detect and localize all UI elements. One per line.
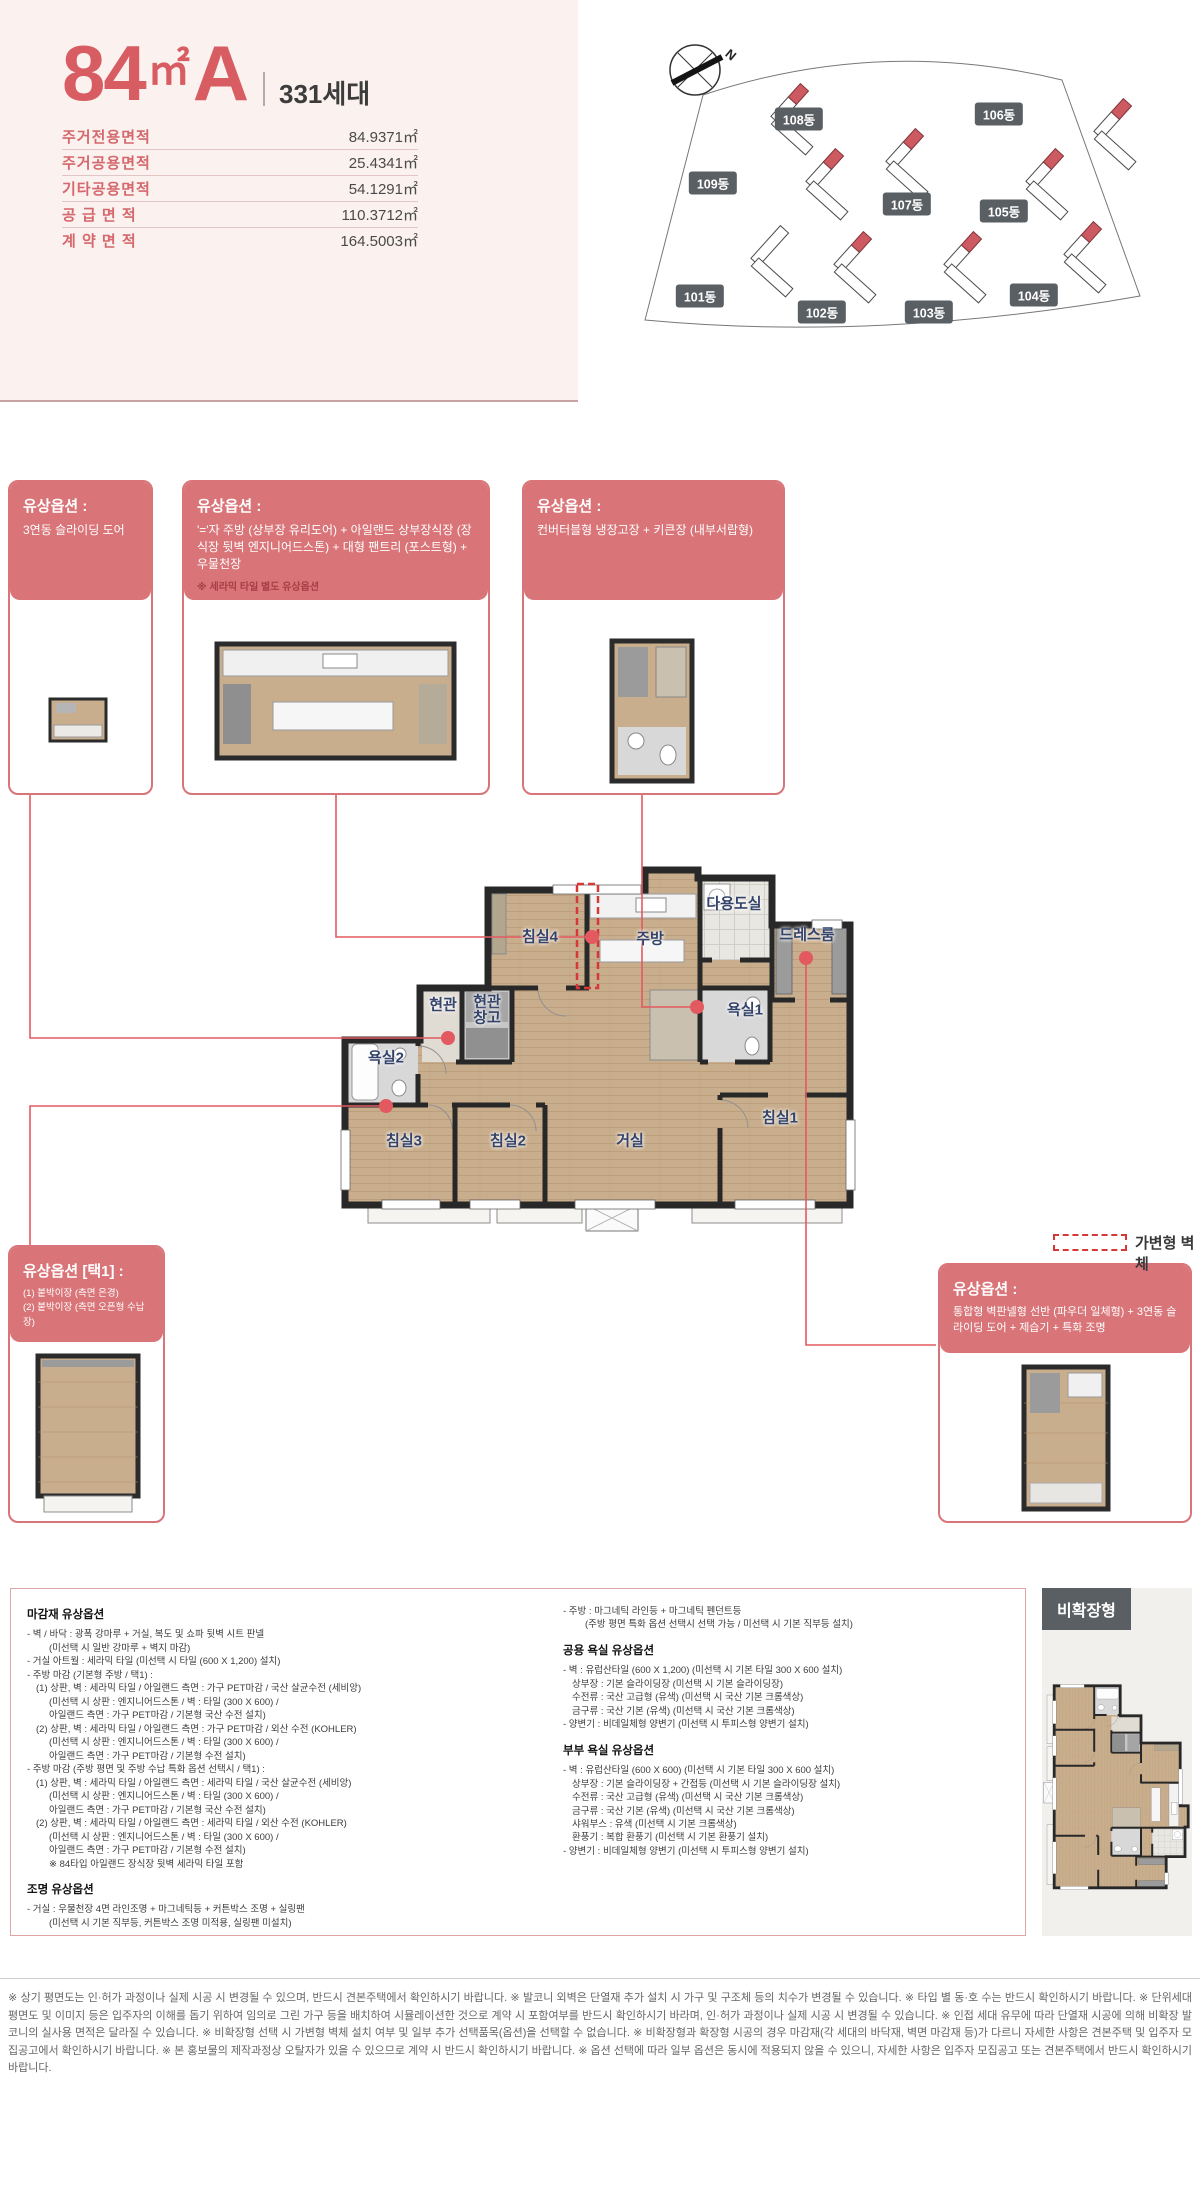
area-row: 공 급 면 적 110.3712㎡ xyxy=(62,201,418,227)
option-connectors xyxy=(30,795,936,1345)
option-title: 유상옵션 : xyxy=(197,495,475,516)
spec-line: - 거실 아트월 : 세라믹 타일 (미선택 시 타일 (600 X 1,200… xyxy=(27,1655,547,1668)
area-table: 주거전용면적 84.9371㎡ 주거공용면적 25.4341㎡ 기타공용면적 5… xyxy=(62,124,418,253)
room-label-bedroom1: 침실1 xyxy=(762,1107,798,1128)
spec-line: (2) 상판, 벽 : 세라믹 타일 / 아일랜드 측면 : 가구 PET마감 … xyxy=(27,1723,547,1736)
option-box-fridge: 유상옵션 : 컨버터블형 냉장고장 + 키큰장 (내부서랍형) xyxy=(522,480,785,795)
area-row: 계 약 면 적 164.5003㎡ xyxy=(62,227,418,253)
option-box-header: 유상옵션 [택1] : (1) 붙박이장 (측면 은경) (2) 붙박이장 (측… xyxy=(10,1247,163,1342)
spec-line: 아일랜드 측면 : 가구 PET마감 / 기본형 국산 수전 설치) xyxy=(27,1804,547,1817)
title-divider xyxy=(263,72,265,106)
hero-panel: 84㎡A 331세대 주거전용면적 84.9371㎡ 주거공용면적 25.434… xyxy=(0,0,578,402)
floor-plan-graphic xyxy=(341,870,855,1231)
spec-column-right: - 주방 : 마그네틱 라인등 + 마그네틱 펜던트등(주방 평면 특화 옵션 … xyxy=(563,1605,1018,1858)
option-box-header: 유상옵션 : 통합형 벽판넬형 선반 (파우더 일체형) + 3연동 슬라이딩 … xyxy=(940,1265,1190,1353)
option-thumbnail xyxy=(608,637,696,785)
building-label-107: 107동 xyxy=(883,193,931,216)
spec-line: 아일랜드 측면 : 가구 PET마감 / 기본형 수전 설치) xyxy=(27,1844,547,1857)
spec-line: 금구류 : 국산 기본 (유색) (미선택 시 국산 기본 크롬색상) xyxy=(563,1705,1018,1718)
spec-line: 부부 욕실 유상옵션 xyxy=(563,1743,1018,1759)
building-label-102: 102동 xyxy=(798,301,846,324)
spec-line: 환풍기 : 복합 환풍기 (미선택 시 기본 환풍기 설치) xyxy=(563,1831,1018,1844)
spec-line: 상부장 : 기본 슬라이딩장 (미선택 시 기본 슬라이딩장) xyxy=(563,1678,1018,1691)
option-body: 3연동 슬라이딩 도어 xyxy=(23,522,138,539)
spec-line: - 주방 마감 (주방 평면 및 주방 수납 특화 옵션 선택시 / 택1) : xyxy=(27,1763,547,1776)
spec-line: (미선택 시 상판 : 엔지니어드스톤 / 벽 : 타일 (300 X 600)… xyxy=(27,1790,547,1803)
building-label-106: 106동 xyxy=(975,103,1023,126)
spec-line: (1) 상판, 벽 : 세라믹 타일 / 아일랜드 측면 : 세라믹 타일 / … xyxy=(27,1777,547,1790)
spec-line: 샤워부스 : 유색 (미선택 시 기본 크롬색상) xyxy=(563,1818,1018,1831)
spec-line: 마감재 유상옵션 xyxy=(27,1607,547,1623)
area-row: 기타공용면적 54.1291㎡ xyxy=(62,175,418,201)
building-label-105: 105동 xyxy=(980,200,1028,223)
option-box-sliding-door: 유상옵션 : 3연동 슬라이딩 도어 xyxy=(8,480,153,795)
option-box-powder-shelf: 유상옵션 : 통합형 벽판넬형 선반 (파우더 일체형) + 3연동 슬라이딩 … xyxy=(938,1263,1192,1523)
spec-column-left: 마감재 유상옵션- 벽 / 바닥 : 광폭 강마루 + 거실, 복도 및 쇼파 … xyxy=(27,1605,547,1930)
spec-line: (1) 상판, 벽 : 세라믹 타일 / 아일랜드 측면 : 가구 PET마감 … xyxy=(27,1682,547,1695)
area-value: 164.5003㎡ xyxy=(340,230,418,251)
spec-line: 상부장 : 기본 슬라이딩장 + 간접등 (미선택 시 기본 슬라이딩장 설치) xyxy=(563,1778,1018,1791)
spec-line: 아일랜드 측면 : 가구 PET마감 / 기본형 국산 수전 설치) xyxy=(27,1709,547,1722)
spec-line: ※ 84타입 아일랜드 장식장 뒷벽 세라믹 타일 포함 xyxy=(27,1858,547,1871)
option-dots xyxy=(379,930,813,1113)
svg-text:N: N xyxy=(723,46,740,64)
building-label-108: 108동 xyxy=(775,108,823,131)
room-label-bedroom2: 침실2 xyxy=(490,1130,526,1151)
area-value: 110.3712㎡ xyxy=(342,204,418,225)
spec-line: 조명 유상옵션 xyxy=(27,1882,547,1898)
option-note: ※ 세라믹 타일 별도 유상옵션 xyxy=(197,578,475,593)
spec-line: - 벽 / 바닥 : 광폭 강마루 + 거실, 복도 및 쇼파 뒷벽 시트 판넬 xyxy=(27,1628,547,1641)
option-box-closet: 유상옵션 [택1] : (1) 붙박이장 (측면 은경) (2) 붙박이장 (측… xyxy=(8,1245,165,1523)
spec-line xyxy=(27,1871,547,1880)
room-label-bedroom4: 침실4 xyxy=(522,926,558,947)
option-body: '='자 주방 (상부장 유리도어) + 아일랜드 상부장식장 (장식장 뒷벽 … xyxy=(197,522,475,573)
spec-line: (미선택 시 상판 : 엔지니어드스톤 / 벽 : 타일 (300 X 600)… xyxy=(27,1736,547,1749)
spec-line: - 양변기 : 비데일체형 양변기 (미선택 시 투피스형 양변기 설치) xyxy=(563,1845,1018,1858)
option-thumbnail xyxy=(1020,1363,1112,1513)
room-label-dressroom: 드레스룸 xyxy=(779,924,834,945)
spec-line: (미선택 시 상판 : 엔지니어드스톤 / 벽 : 타일 (300 X 600)… xyxy=(27,1696,547,1709)
area-value: 25.4341㎡ xyxy=(349,152,418,173)
building-label-103: 103동 xyxy=(905,301,953,324)
option-title: 유상옵션 : xyxy=(23,495,138,516)
area-value: 54.1291㎡ xyxy=(349,178,418,199)
spec-line: 수전류 : 국산 고급형 (유색) (미선택 시 국산 기본 크롬색상) xyxy=(563,1791,1018,1804)
spec-line: 금구류 : 국산 기본 (유색) (미선택 시 국산 기본 크롬색상) xyxy=(563,1805,1018,1818)
spec-line: (미선택 시 기본 직부등, 커튼박스 조명 미적용, 실링팬 미설치) xyxy=(27,1917,547,1930)
room-label-utility: 다용도실 xyxy=(706,893,761,914)
spec-line: (미선택 시 일반 강마루 + 벽지 마감) xyxy=(27,1642,547,1655)
option-box-kitchen: 유상옵션 : '='자 주방 (상부장 유리도어) + 아일랜드 상부장식장 (… xyxy=(182,480,490,795)
spec-line: 수전류 : 국산 고급형 (유색) (미선택 시 국산 기본 크롬색상) xyxy=(563,1691,1018,1704)
option-box-header: 유상옵션 : '='자 주방 (상부장 유리도어) + 아일랜드 상부장식장 (… xyxy=(184,482,488,600)
movable-wall-marker xyxy=(577,884,598,988)
option-thumbnail xyxy=(34,1352,142,1517)
option-box-header: 유상옵션 : 컨버터블형 냉장고장 + 키큰장 (내부서랍형) xyxy=(524,482,783,600)
spec-line xyxy=(563,1732,1018,1741)
option-title: 유상옵션 : xyxy=(953,1278,1177,1299)
area-row: 주거전용면적 84.9371㎡ xyxy=(62,124,418,149)
finish-options-section: 마감재 유상옵션- 벽 / 바닥 : 광폭 강마루 + 거실, 복도 및 쇼파 … xyxy=(10,1588,1026,1936)
area-label: 계 약 면 적 xyxy=(62,230,137,251)
area-value: 84.9371㎡ xyxy=(349,126,418,147)
spec-line: (미선택 시 상판 : 엔지니어드스톤 / 벽 : 타일 (300 X 600)… xyxy=(27,1831,547,1844)
spec-line: - 벽 : 유럽산타일 (600 X 1,200) (미선택 시 기본 타일 3… xyxy=(563,1664,1018,1677)
area-label: 공 급 면 적 xyxy=(62,204,137,225)
room-label-bathroom1: 욕실1 xyxy=(727,999,763,1020)
spec-line: 아일랜드 측면 : 가구 PET마감 / 기본형 수전 설치) xyxy=(27,1750,547,1763)
movable-wall-legend-label: 가변형 벽체 xyxy=(1135,1232,1200,1274)
area-label: 기타공용면적 xyxy=(62,178,151,199)
room-label-living: 거실 xyxy=(616,1130,644,1151)
spec-line xyxy=(563,1632,1018,1641)
non-expanded-label: 비확장형 xyxy=(1042,1588,1131,1630)
room-label-kitchen: 주방 xyxy=(636,928,664,949)
option-body: (1) 붙박이장 (측면 은경) xyxy=(23,1287,150,1301)
footer-divider xyxy=(0,1978,1200,1979)
option-body-2: (2) 붙박이장 (측면 오픈형 수납장) xyxy=(23,1301,150,1330)
type-size-unit: ㎡ xyxy=(148,46,190,93)
room-label-bathroom2: 욕실2 xyxy=(368,1047,404,1068)
option-box-header: 유상옵션 : 3연동 슬라이딩 도어 xyxy=(10,482,151,600)
compass-icon: N xyxy=(670,45,739,95)
disclaimer: ※ 상기 평면도는 인·허가 과정이나 실제 시공 시 변경될 수 있으며, 반… xyxy=(8,1990,1192,2078)
spec-line: (주방 평면 특화 옵션 선택시 선택 가능 / 미선택 시 기본 직부등 설치… xyxy=(563,1618,1018,1631)
movable-wall-legend-icon xyxy=(1053,1234,1127,1251)
building-label-104: 104동 xyxy=(1010,284,1058,307)
spec-line: - 주방 마감 (기본형 주방 / 택1) : xyxy=(27,1669,547,1682)
area-label: 주거전용면적 xyxy=(62,126,151,147)
option-body: 통합형 벽판넬형 선반 (파우더 일체형) + 3연동 슬라이딩 도어 + 제습… xyxy=(953,1305,1177,1336)
brochure-page: 84㎡A 331세대 주거전용면적 84.9371㎡ 주거공용면적 25.434… xyxy=(0,0,1200,2193)
spec-line: - 벽 : 유럽산타일 (600 X 600) (미선택 시 기본 타일 300… xyxy=(563,1764,1018,1777)
option-title: 유상옵션 : xyxy=(537,495,770,516)
spec-line: - 거실 : 우물천장 4면 라인조명 + 마그네틱등 + 커튼박스 조명 + … xyxy=(27,1903,547,1916)
household-count: 331세대 xyxy=(279,74,370,111)
option-thumbnail xyxy=(213,640,458,762)
room-label-entrance: 현관 xyxy=(429,994,457,1015)
spec-line: 공용 욕실 유상옵션 xyxy=(563,1643,1018,1659)
spec-line: (2) 상판, 벽 : 세라믹 타일 / 아일랜드 측면 : 세라믹 타일 / … xyxy=(27,1817,547,1830)
room-label-entrance-storage: 현관창고 xyxy=(468,994,506,1026)
area-row: 주거공용면적 25.4341㎡ xyxy=(62,149,418,175)
area-label: 주거공용면적 xyxy=(62,152,151,173)
type-size: 84 xyxy=(62,29,145,117)
spec-line: - 양변기 : 비데일체형 양변기 (미선택 시 투피스형 양변기 설치) xyxy=(563,1718,1018,1731)
building-label-101: 101동 xyxy=(676,285,724,308)
option-thumbnail xyxy=(48,697,108,743)
option-body: 컨버터블형 냉장고장 + 키큰장 (내부서랍형) xyxy=(537,522,770,539)
building-label-109: 109동 xyxy=(689,172,737,195)
type-letter: A xyxy=(193,29,247,117)
non-expanded-panel xyxy=(1042,1588,1192,1936)
spec-line: - 주방 : 마그네틱 라인등 + 마그네틱 펜던트등 xyxy=(563,1605,1018,1618)
unit-type-title: 84㎡A xyxy=(62,34,247,112)
option-title: 유상옵션 [택1] : xyxy=(23,1260,150,1281)
room-label-bedroom3: 침실3 xyxy=(386,1130,422,1151)
